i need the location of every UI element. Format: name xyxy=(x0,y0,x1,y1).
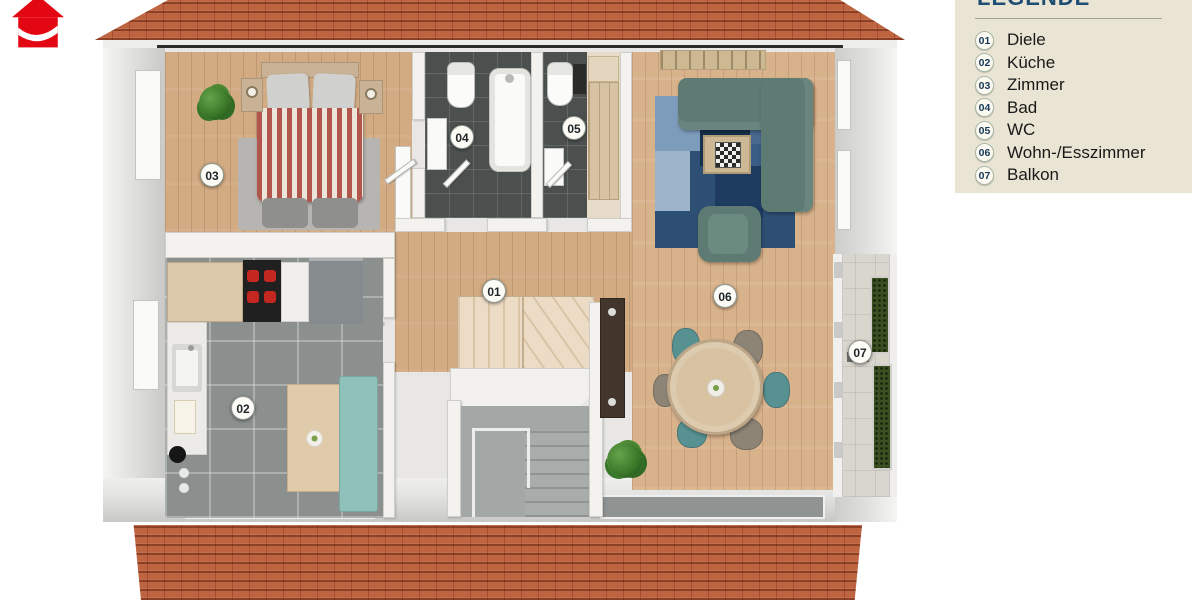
window-right-living-2 xyxy=(837,150,851,230)
window-left-bedroom xyxy=(135,70,161,180)
wall-bedroom-bath-lower xyxy=(412,168,425,218)
room-badge-01: 01 xyxy=(482,279,506,303)
wc-shelf xyxy=(573,64,586,94)
room-badge-02: 02 xyxy=(231,396,255,420)
bathtub-drain xyxy=(505,74,514,83)
chessboard xyxy=(715,142,741,168)
legend-item-bad: 04 Bad xyxy=(975,97,1192,120)
wardrobe-upper-cabinet xyxy=(588,56,619,82)
wall-art xyxy=(660,50,766,70)
kitchen-bin xyxy=(169,446,186,463)
legend-badge-04: 04 xyxy=(975,98,994,117)
kitchen-counter-white xyxy=(281,262,309,322)
room-badge-07: 07 xyxy=(848,340,872,364)
legend-label-kueche: Küche xyxy=(1007,53,1055,73)
bed-foot-cushion-right xyxy=(312,198,358,228)
stairs-down xyxy=(525,430,589,517)
stairwell-wall-left xyxy=(447,400,461,517)
stove-burner-2 xyxy=(264,270,276,282)
wall-bedroom-kitchen xyxy=(165,232,395,258)
kitchen-table-plate xyxy=(306,430,323,447)
wall-bath-wc xyxy=(531,52,543,218)
legend-badge-03: 03 xyxy=(975,76,994,95)
legend-label-zimmer: Zimmer xyxy=(1007,75,1065,95)
dining-table-bowl xyxy=(707,379,725,397)
legend-label-wc: WC xyxy=(1007,120,1035,140)
toilet-wc xyxy=(547,62,573,106)
floor-plan: 01 02 03 04 05 06 07 xyxy=(95,0,905,600)
legend-item-zimmer: 03 Zimmer xyxy=(975,74,1192,97)
dining-chair-4 xyxy=(763,372,790,408)
stove-burner-4 xyxy=(264,291,276,303)
legend-badge-06: 06 xyxy=(975,143,994,162)
bed-foot-cushion-left xyxy=(262,198,308,228)
lamp-right xyxy=(365,88,377,100)
wall-hall-1 xyxy=(395,218,445,232)
wardrobe xyxy=(588,82,619,200)
lamp-left xyxy=(246,86,258,98)
balcony-planter-2 xyxy=(872,364,892,470)
stairs-up-left xyxy=(457,296,523,370)
bathtub xyxy=(489,68,531,172)
kitchen-counter-beige xyxy=(167,262,243,322)
legend-label-diele: Diele xyxy=(1007,30,1046,50)
sideboard-knob-2 xyxy=(608,398,616,406)
room-badge-05: 05 xyxy=(562,116,586,140)
legend-badge-07: 07 xyxy=(975,166,994,185)
stair-rail-vertical xyxy=(472,428,475,517)
legend-list: 01 Diele 02 Küche 03 Zimmer 04 Bad 05 WC… xyxy=(955,29,1192,187)
legend-badge-05: 05 xyxy=(975,121,994,140)
roof-bottom xyxy=(130,525,862,600)
sofa-right-section xyxy=(761,78,813,212)
floorplan-canvas: 01 02 03 04 05 06 07 LEGENDE 01 Diele 02… xyxy=(0,0,1200,600)
legend-divider xyxy=(975,18,1162,19)
stair-rail-horizontal xyxy=(472,428,530,431)
window-right-living xyxy=(837,60,851,130)
kitchen-deco-tray xyxy=(174,400,196,434)
legend-panel: LEGENDE 01 Diele 02 Küche 03 Zimmer 04 B… xyxy=(955,0,1192,193)
legend-badge-01: 01 xyxy=(975,31,994,50)
balcony-post-1 xyxy=(834,262,842,278)
balcony-door-frame xyxy=(833,254,843,497)
legend-title: LEGENDE xyxy=(977,0,1192,11)
legend-label-balkon: Balkon xyxy=(1007,165,1059,185)
kitchen-tall-cabinet xyxy=(309,258,363,324)
legend-item-balkon: 07 Balkon xyxy=(975,164,1192,187)
wall-bedroom-bath-upper xyxy=(412,52,425,120)
balcony-post-2 xyxy=(834,322,842,338)
sideboard-knob-1 xyxy=(608,308,616,316)
wall-kitchen-hall-lower xyxy=(383,362,395,518)
bed-striped-duvet xyxy=(257,108,363,202)
wall-hall-2 xyxy=(487,218,547,232)
stairs-up-winder xyxy=(523,296,595,370)
legend-item-wohnesszimmer: 06 Wohn-/Esszimmer xyxy=(975,142,1192,165)
kitchen-knob-1 xyxy=(179,468,189,478)
balcony-planter-1 xyxy=(870,276,890,354)
stair-rail-inner xyxy=(527,428,530,488)
stove-burner-3 xyxy=(247,291,259,303)
roof-top xyxy=(95,0,905,40)
stove-burner-1 xyxy=(247,270,259,282)
kitchen-faucet xyxy=(188,345,194,351)
balcony-post-4 xyxy=(834,442,842,458)
wall-kitchen-hall-upper xyxy=(383,258,395,318)
legend-item-wc: 05 WC xyxy=(975,119,1192,142)
kitchen-knob-2 xyxy=(179,483,189,493)
plant-living xyxy=(607,442,643,478)
wall-hall-3 xyxy=(587,218,632,232)
kitchen-sink-basin xyxy=(176,350,198,386)
armchair-cushion xyxy=(708,214,748,254)
legend-item-diele: 01 Diele xyxy=(975,29,1192,52)
exterior-wall-right-lower xyxy=(835,497,897,522)
legend-label-bad: Bad xyxy=(1007,98,1037,118)
window-left-kitchen xyxy=(133,300,159,390)
toilet-bath xyxy=(447,62,475,108)
room-badge-04: 04 xyxy=(450,125,474,149)
bath-vanity xyxy=(427,118,447,170)
room-badge-03: 03 xyxy=(200,163,224,187)
legend-badge-02: 02 xyxy=(975,53,994,72)
window-recess-living xyxy=(600,495,825,519)
legend-item-kueche: 02 Küche xyxy=(975,52,1192,75)
red-house-logo-icon xyxy=(12,0,64,53)
legend-label-wohnesszimmer: Wohn-/Esszimmer xyxy=(1007,143,1146,163)
balcony-post-3 xyxy=(834,382,842,398)
kitchen-bench xyxy=(339,376,378,512)
room-badge-06: 06 xyxy=(713,284,737,308)
plant-bedroom xyxy=(199,86,231,120)
wall-wc-living xyxy=(620,52,632,230)
